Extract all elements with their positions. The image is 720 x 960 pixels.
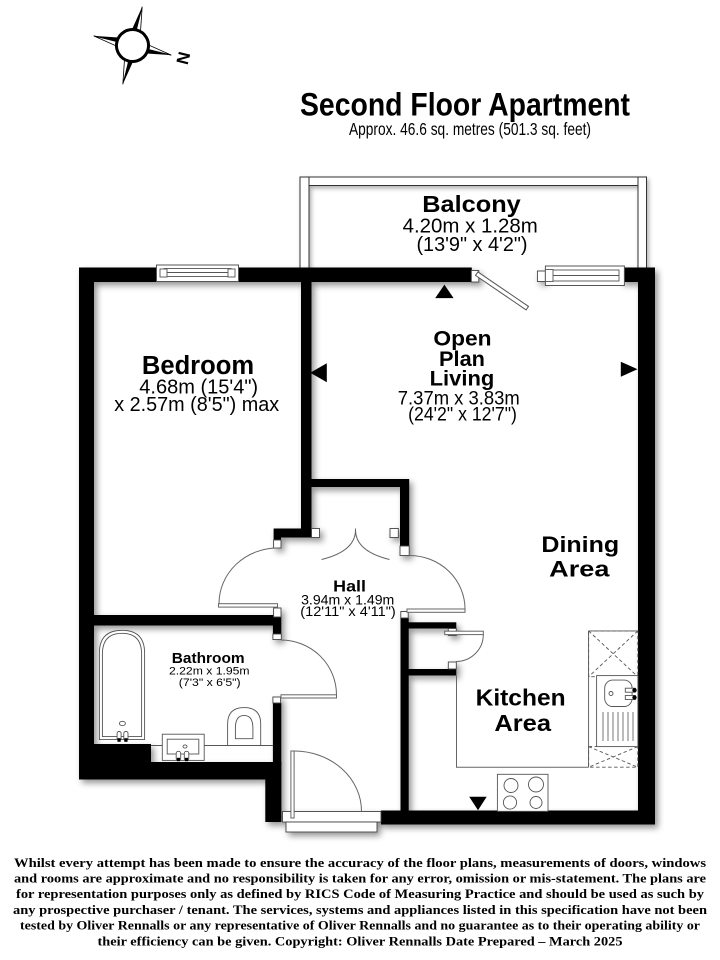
svg-text:Second Floor Apartment: Second Floor Apartment: [300, 87, 630, 123]
svg-text:and rooms are approximate and: and rooms are approximate and no respons…: [14, 871, 706, 886]
svg-text:Dining: Dining: [541, 532, 619, 557]
svg-text:(13'9" x 4'2"): (13'9" x 4'2"): [416, 234, 527, 256]
svg-text:Balcony: Balcony: [422, 191, 521, 217]
svg-text:any prospective purchaser / te: any prospective purchaser / tenant. The …: [13, 902, 708, 917]
svg-text:Living: Living: [430, 367, 495, 391]
svg-text:Area: Area: [494, 710, 552, 736]
svg-text:Whilst every attempt has been: Whilst every attempt has been made to en…: [14, 855, 706, 870]
svg-text:Area: Area: [549, 557, 610, 582]
svg-text:Kitchen: Kitchen: [476, 685, 566, 711]
svg-text:2.22m x 1.95m: 2.22m x 1.95m: [169, 666, 250, 678]
svg-text:tested by Oliver Rennalls or a: tested by Oliver Rennalls or any represe…: [20, 918, 700, 933]
svg-text:Approx. 46.6 sq. metres (501.3: Approx. 46.6 sq. metres (501.3 sq. feet): [349, 119, 591, 139]
svg-text:x 2.57m (8'5") max: x 2.57m (8'5") max: [114, 394, 279, 416]
svg-text:(24'2" x 12'7"): (24'2" x 12'7"): [408, 404, 517, 425]
svg-text:(12'11" x 4'11"): (12'11" x 4'11"): [300, 604, 396, 619]
svg-text:their efficiency can be given.: their efficiency can be given. Copyright…: [98, 933, 624, 948]
svg-text:for representation purposes on: for representation purposes only as defi…: [16, 886, 705, 901]
svg-text:N: N: [172, 50, 193, 67]
svg-text:(7'3" x 6'5"): (7'3" x 6'5"): [179, 677, 241, 689]
